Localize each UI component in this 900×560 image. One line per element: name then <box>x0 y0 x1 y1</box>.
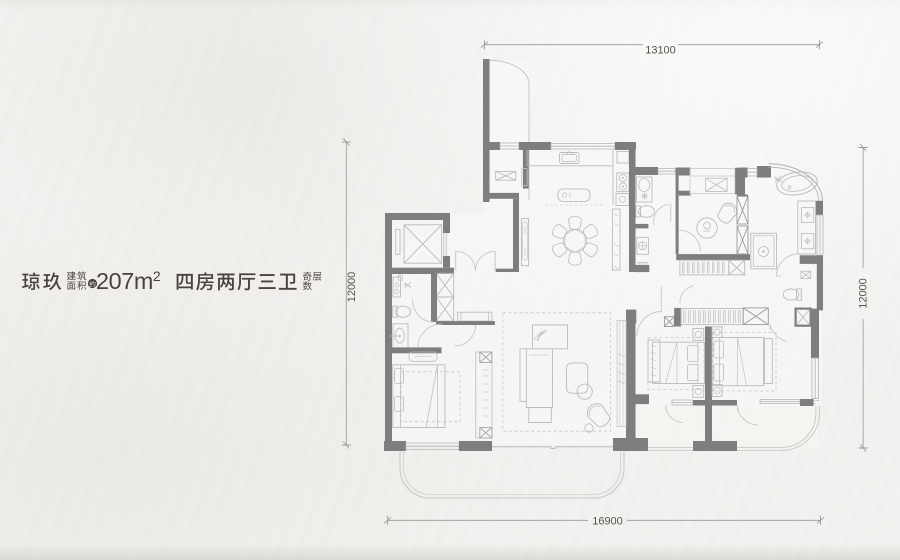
svg-text:12000: 12000 <box>857 278 869 309</box>
svg-text:16900: 16900 <box>592 516 623 528</box>
svg-text:13100: 13100 <box>645 45 676 57</box>
svg-text:207m2: 207m2 <box>96 268 161 294</box>
svg-text:12000: 12000 <box>346 272 358 303</box>
